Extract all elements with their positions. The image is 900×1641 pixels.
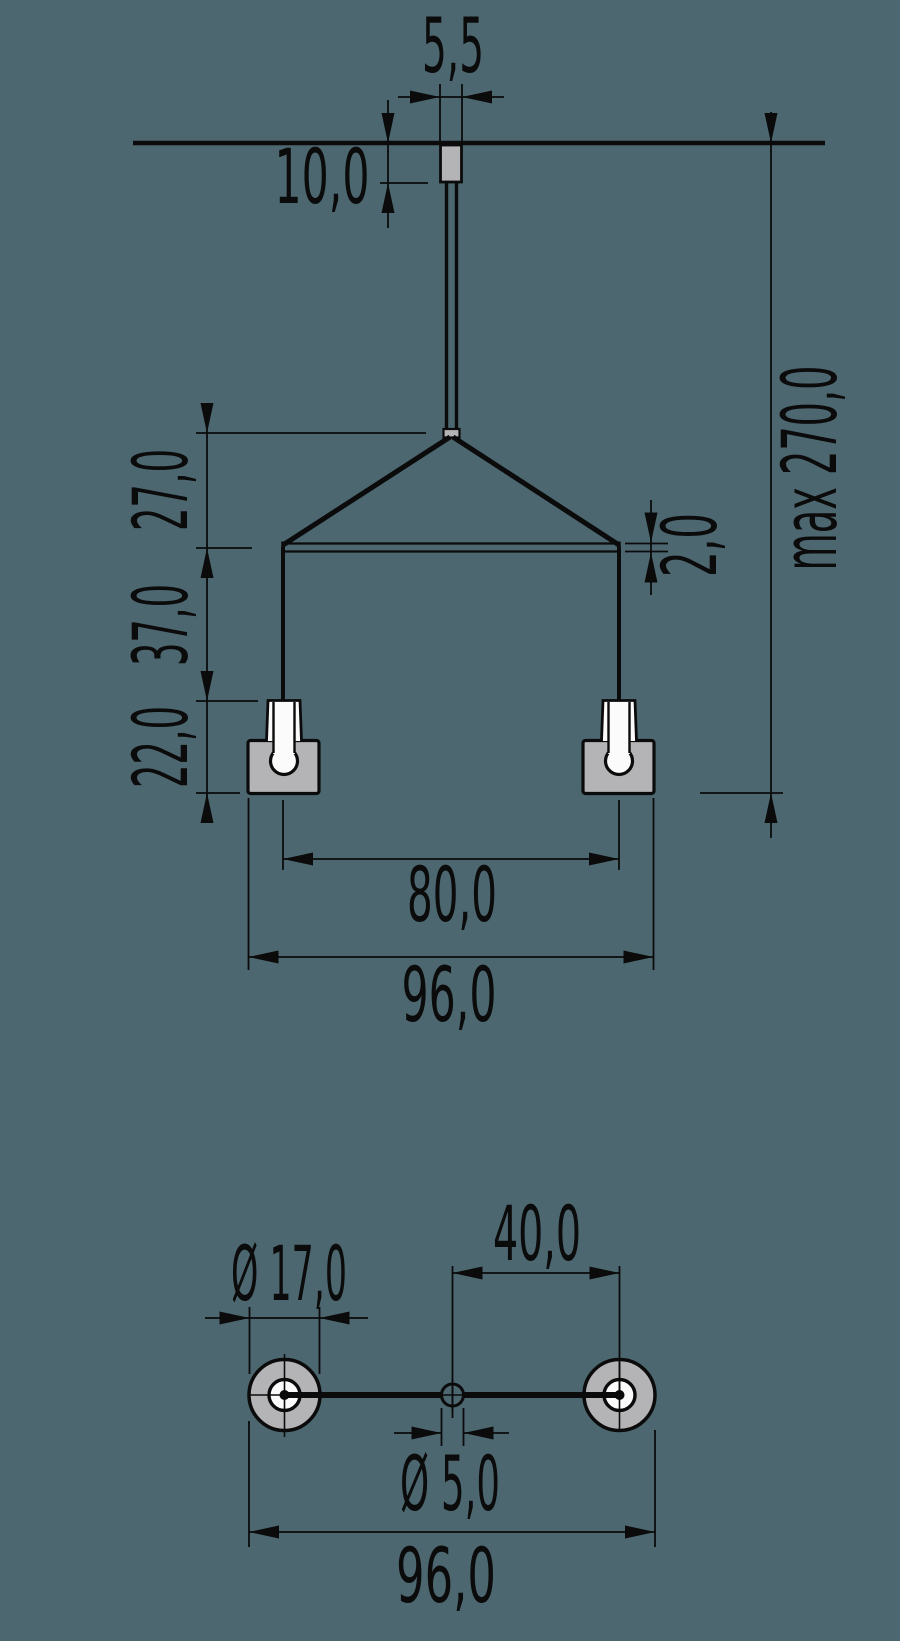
dim-label-bar-to-socket: 37,0 xyxy=(116,584,205,666)
dim-label-stem-width: 5,5 xyxy=(422,1,484,90)
dim-stem-width: 5,5 xyxy=(398,1,504,141)
dim-washer-diameter: Ø 17,0 xyxy=(205,1229,368,1374)
dimension-arrow xyxy=(249,951,279,964)
dim-label-bar-thickness: 2,0 xyxy=(645,513,734,577)
cord-junction-knot xyxy=(444,429,460,438)
dimension-arrow xyxy=(249,1526,279,1539)
dimension-arrow xyxy=(412,1427,442,1440)
dim-label-center-to-washer: 40,0 xyxy=(493,1189,581,1278)
front-view xyxy=(133,143,825,794)
socket-fill xyxy=(267,701,302,742)
dimension-arrow xyxy=(589,853,619,866)
dimension-arrow xyxy=(283,853,313,866)
dimension-arrow xyxy=(765,793,778,823)
dim-stem-height: 10,0 xyxy=(275,100,429,228)
technical-drawing: 5,5 10,0 27,0 37,0 22,0 2,0 max 270,0 xyxy=(0,0,900,1641)
dimension-arrow xyxy=(201,671,214,701)
dim-center-hole-diameter: Ø 5,0 xyxy=(394,1408,509,1528)
dimension-arrow xyxy=(410,91,440,104)
lamp-holder-right xyxy=(583,701,654,794)
dim-label-overall-width-front: 96,0 xyxy=(402,950,497,1039)
lamp-holder-left xyxy=(248,701,319,794)
dimension-arrow xyxy=(201,793,214,823)
dimension-arrow xyxy=(201,403,214,433)
dim-label-max-length: max 270,0 xyxy=(765,366,854,571)
dimension-arrow xyxy=(464,1427,494,1440)
socket-fill xyxy=(602,701,637,742)
dim-bar-thickness: 2,0 xyxy=(625,500,734,595)
dimension-arrow xyxy=(462,91,492,104)
ceiling-mount-stem xyxy=(441,145,462,182)
v-splitter-right-arm xyxy=(453,437,619,545)
dim-label-center-hole-diameter: Ø 5,0 xyxy=(400,1439,500,1528)
dimension-arrow xyxy=(382,113,395,143)
dim-label-stem-height: 10,0 xyxy=(275,132,370,221)
dimension-arrow xyxy=(625,1526,655,1539)
dimension-arrow xyxy=(201,548,214,578)
dimension-arrow xyxy=(453,1267,483,1280)
dim-label-overall-width-plan: 96,0 xyxy=(396,1531,496,1620)
v-splitter-left-arm xyxy=(283,437,450,545)
dimension-arrow xyxy=(590,1267,620,1280)
dim-label-drop-to-bar: 27,0 xyxy=(116,449,205,531)
dim-socket-spacing: 80,0 xyxy=(283,800,619,939)
dim-max-length: max 270,0 xyxy=(700,112,854,838)
dim-label-washer-diameter: Ø 17,0 xyxy=(231,1229,347,1318)
dimension-arrow xyxy=(624,951,654,964)
dimension-arrow xyxy=(765,113,778,143)
dim-label-socket-height: 22,0 xyxy=(116,706,205,788)
dim-label-socket-spacing: 80,0 xyxy=(407,850,497,939)
dimension-arrow xyxy=(382,183,395,213)
